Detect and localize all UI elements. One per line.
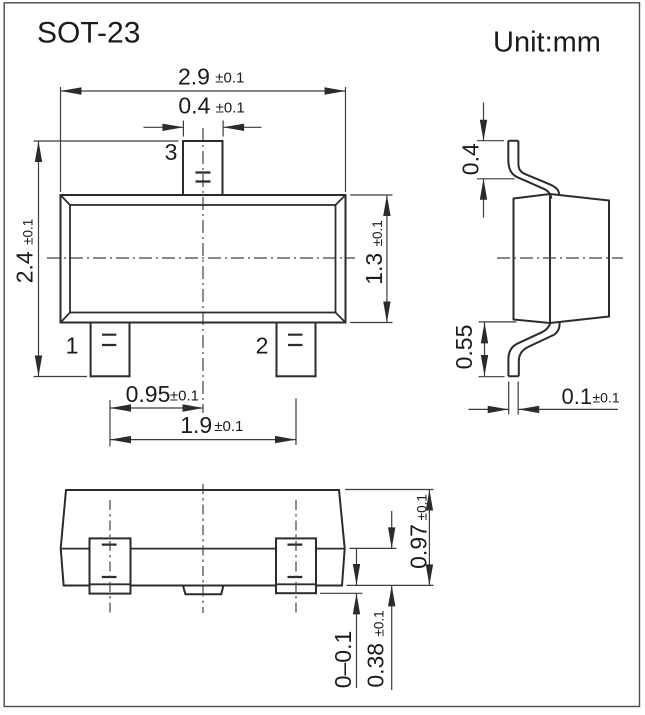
svg-text:0.1: 0.1 <box>562 384 593 409</box>
svg-text:±0.1: ±0.1 <box>216 99 245 116</box>
svg-text:Unit:mm: Unit:mm <box>493 27 601 59</box>
svg-text:0–0.1: 0–0.1 <box>330 631 356 689</box>
svg-text:1.9: 1.9 <box>180 412 212 438</box>
svg-text:0.4: 0.4 <box>458 143 484 175</box>
svg-text:±0.1: ±0.1 <box>214 418 243 435</box>
svg-text:±0.1: ±0.1 <box>215 70 244 87</box>
svg-text:2.9: 2.9 <box>178 64 210 90</box>
svg-text:SOT-23: SOT-23 <box>37 17 140 50</box>
svg-text:0.4: 0.4 <box>178 93 210 119</box>
svg-text:1: 1 <box>66 333 79 359</box>
svg-text:0.95: 0.95 <box>126 381 171 407</box>
svg-text:3: 3 <box>165 139 178 165</box>
svg-text:±0.1: ±0.1 <box>170 388 199 405</box>
svg-text:±0.1: ±0.1 <box>593 390 620 406</box>
svg-text:0.55: 0.55 <box>451 325 477 370</box>
svg-text:2: 2 <box>256 333 269 359</box>
